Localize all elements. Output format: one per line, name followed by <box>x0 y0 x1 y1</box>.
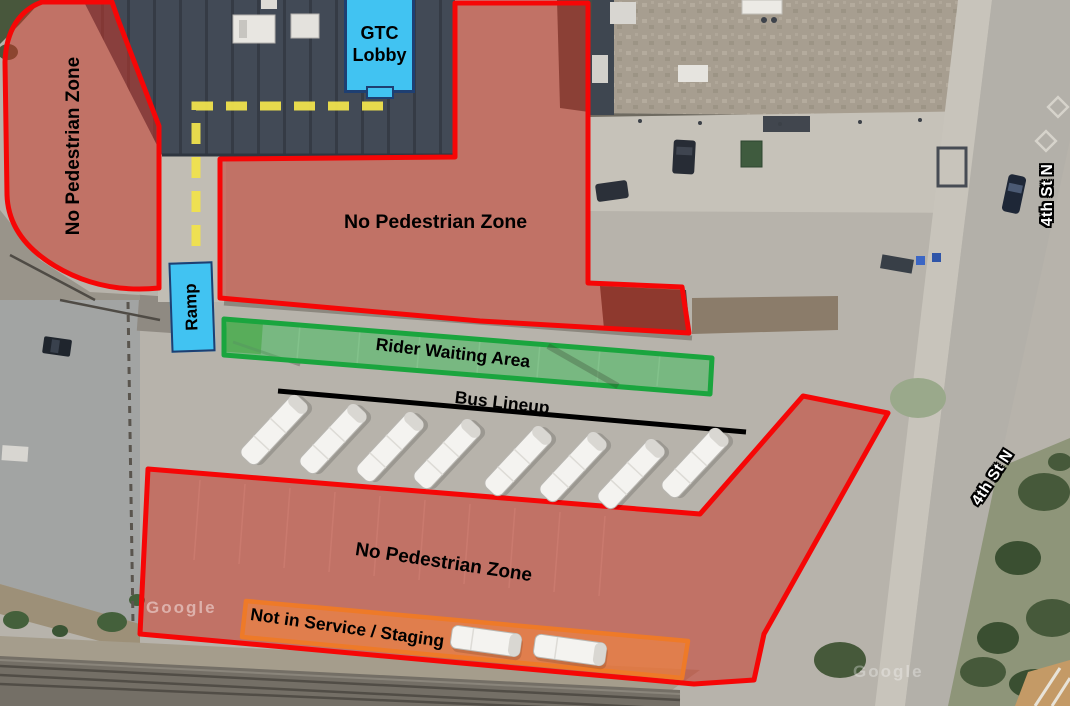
transit-center-map: No Pedestrian Zone No Pedestrian Zone No… <box>0 0 1070 706</box>
gtc-lobby-door <box>366 86 394 99</box>
ramp-label: Ramp <box>181 283 203 331</box>
map-watermark: Google <box>146 598 217 618</box>
gtc-lobby-marker: GTC Lobby <box>344 0 415 93</box>
street-label-4th-st-n-north: 4th St N <box>1039 150 1057 240</box>
no-pedestrian-zone-left-label: No Pedestrian Zone <box>63 46 85 246</box>
no-pedestrian-zone-center-label: No Pedestrian Zone <box>344 211 527 234</box>
ramp-marker: Ramp <box>168 261 215 352</box>
map-watermark-2: Google <box>853 662 924 682</box>
gtc-lobby-label: GTC Lobby <box>347 23 412 66</box>
